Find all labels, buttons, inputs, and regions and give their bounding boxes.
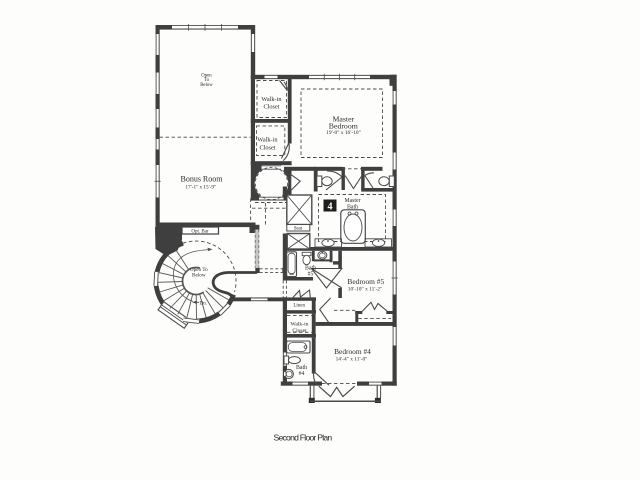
svg-text:Closet: Closet [292, 328, 307, 334]
svg-text:4: 4 [328, 201, 333, 212]
svg-text:#5: #5 [308, 271, 314, 277]
svg-text:Bath: Bath [347, 204, 358, 210]
svg-text:Below: Below [192, 273, 206, 279]
svg-text:#4: #4 [299, 371, 305, 377]
svg-text:Linen: Linen [293, 303, 305, 308]
svg-text:Bath: Bath [296, 365, 307, 371]
svg-text:Master: Master [344, 198, 360, 204]
svg-text:Closet: Closet [263, 103, 279, 110]
svg-text:Bonus Room: Bonus Room [180, 175, 223, 184]
svg-text:Dn.: Dn. [199, 301, 207, 307]
svg-text:Walk-in: Walk-in [291, 322, 309, 328]
svg-text:19′-0″ x 16′-10″: 19′-0″ x 16′-10″ [326, 130, 361, 136]
svg-text:Bedroom #4: Bedroom #4 [334, 347, 371, 356]
svg-text:Walk-in: Walk-in [261, 96, 282, 103]
svg-text:10′-10″ x 11′-2″: 10′-10″ x 11′-2″ [348, 287, 383, 293]
svg-text:Opt. Bar: Opt. Bar [191, 230, 209, 235]
svg-text:Closet: Closet [259, 144, 275, 151]
svg-text:Walk-in: Walk-in [257, 137, 278, 144]
svg-text:Seat: Seat [294, 227, 303, 232]
svg-text:17′-1″ x 15′-9″: 17′-1″ x 15′-9″ [185, 184, 216, 190]
svg-text:Bedroom #5: Bedroom #5 [347, 277, 384, 286]
svg-text:Below: Below [200, 83, 213, 88]
svg-text:Second Floor Plan: Second Floor Plan [274, 433, 333, 443]
svg-text:14′-4″ x 11′-0″: 14′-4″ x 11′-0″ [336, 357, 368, 363]
